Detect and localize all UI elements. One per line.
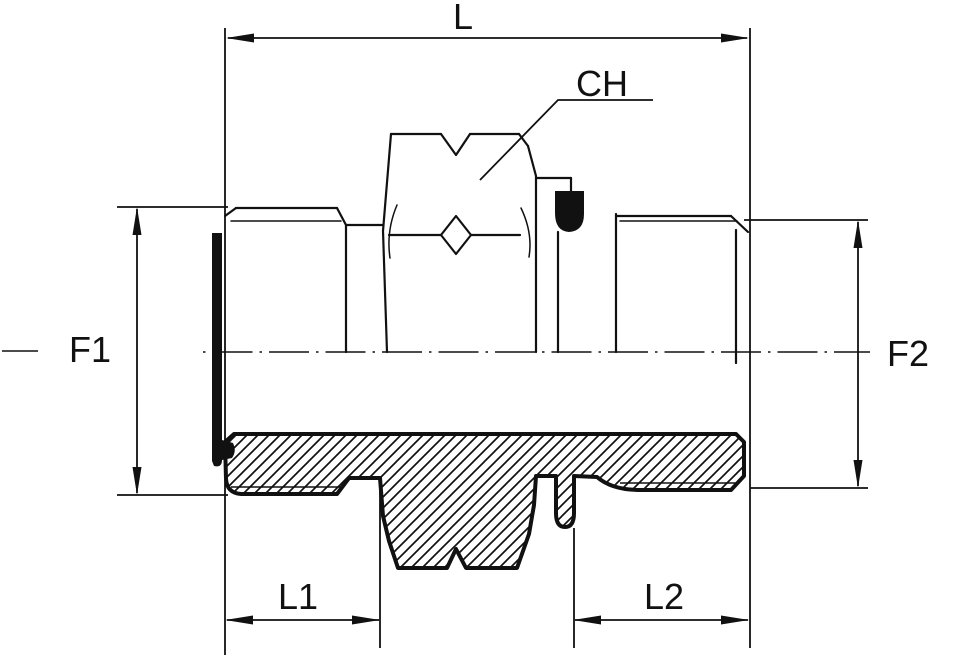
part-section-hatched [225,434,744,568]
dim-label-L1: L1 [278,576,318,617]
arrowhead-F1-top [133,207,142,235]
dimension-L2: L2 [573,576,749,625]
left-seal-bar [212,233,235,466]
dim-label-L: L [453,0,473,37]
dim-label-F1: F1 [69,329,111,370]
centerline [2,351,870,352]
left-thread-end-chamfer [337,208,346,225]
dim-label-F2: F2 [887,333,929,374]
arrowhead-F2-bottom [854,460,863,488]
dim-label-L2: L2 [644,576,684,617]
hex-right-arc [521,208,530,257]
dimension-L1: L1 [225,576,380,625]
hex-face-diamond [441,216,471,254]
part-upper-outline [225,134,748,363]
dimension-F1: F1 [69,207,142,495]
arrowhead-L-left [226,34,254,43]
left-thread-chamfer-tl [225,208,236,216]
dim-label-CH: CH [576,63,628,104]
hex-left-edge [383,134,391,352]
dimension-F2: F2 [854,220,930,488]
arrowhead-L-right [721,34,749,43]
technical-drawing-canvas: L CH F1 F2 L1 L2 [0,0,957,662]
arrowhead-L2-right [721,616,749,625]
dimension-L: L [226,0,749,43]
hex-top-vee [441,134,470,155]
hex-left-arc [389,205,397,258]
arrowhead-F2-top [854,220,863,248]
section-silhouette [225,434,744,568]
arrowhead-L2-left [573,616,601,625]
arrowhead-F1-bottom [133,467,142,495]
adapter-drawing-svg: L CH F1 F2 L1 L2 [0,0,957,662]
arrowhead-L1-left [225,616,253,625]
dimension-CH: CH [480,63,653,180]
right-thread-tip-chamfer [731,216,748,232]
right-seal-section [555,191,584,232]
leader-line-CH [480,100,653,180]
arrowhead-L1-right [352,616,380,625]
